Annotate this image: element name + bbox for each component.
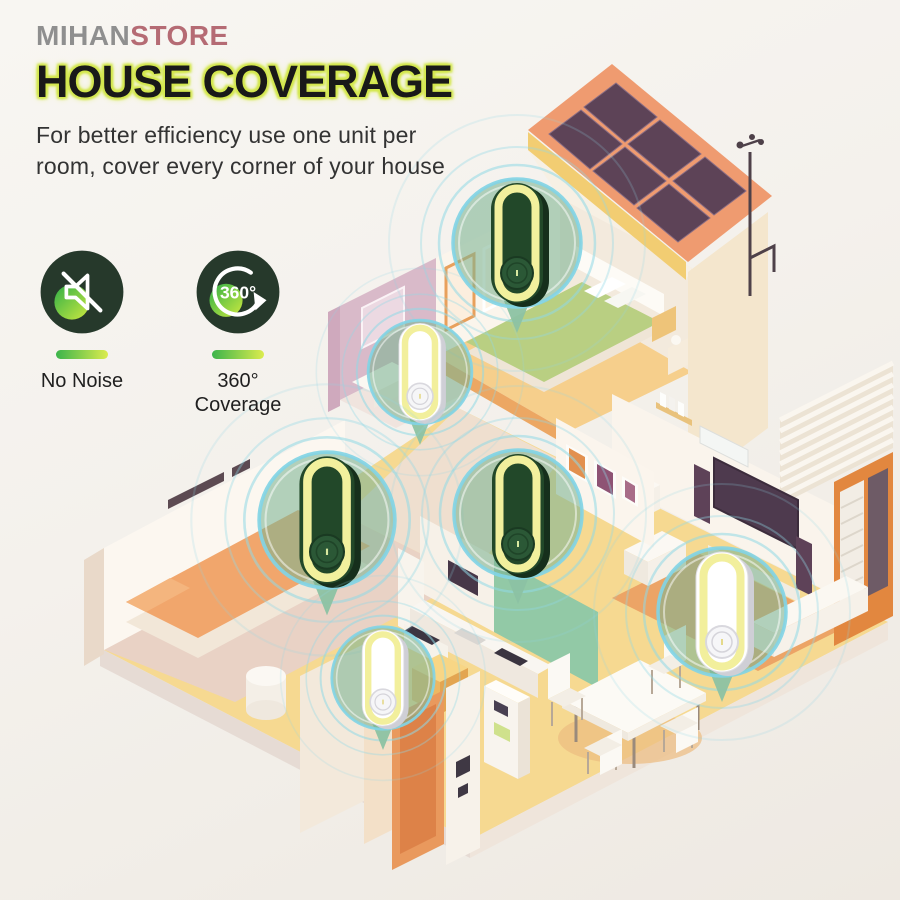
page-title: HOUSE COVERAGE <box>36 56 452 108</box>
muted-speaker-icon <box>36 246 128 338</box>
feature-label: 360° Coverage <box>195 369 282 418</box>
feature-label-line1: No Noise <box>41 370 123 392</box>
subtitle-line2: room, cover every corner of your house <box>36 153 445 179</box>
feature-no-noise: No Noise <box>8 246 156 418</box>
repeller-device <box>492 454 550 578</box>
feature-label-line1: 360° <box>217 370 258 392</box>
brand-part1: MIHAN <box>36 20 130 51</box>
repeller-device <box>696 552 754 676</box>
rotation-arrow-icon: 360° <box>192 246 284 338</box>
feature-badges: No Noise 360° 360° Coverage <box>8 246 312 418</box>
feature-label: No Noise <box>41 369 123 393</box>
badge-360-text: 360° <box>220 282 256 302</box>
speaker <box>694 464 710 524</box>
subtitle-line1: For better efficiency use one unit per <box>36 122 417 148</box>
speaker <box>796 536 812 596</box>
repeller-device <box>491 183 549 307</box>
brand-logo: MIHANSTORE <box>36 22 452 50</box>
repeller-device <box>299 456 360 587</box>
feature-label-line2: Coverage <box>195 394 282 416</box>
gradient-underline <box>56 350 108 359</box>
feature-360-coverage: 360° 360° Coverage <box>164 246 312 418</box>
page-subtitle: For better efficiency use one unit per r… <box>36 120 452 182</box>
gradient-underline <box>212 350 264 359</box>
brand-part2: STORE <box>130 20 228 51</box>
repeller-device <box>362 630 408 729</box>
header: MIHANSTORE HOUSE COVERAGE For better eff… <box>36 22 452 182</box>
page: MIHANSTORE HOUSE COVERAGE For better eff… <box>0 0 900 900</box>
